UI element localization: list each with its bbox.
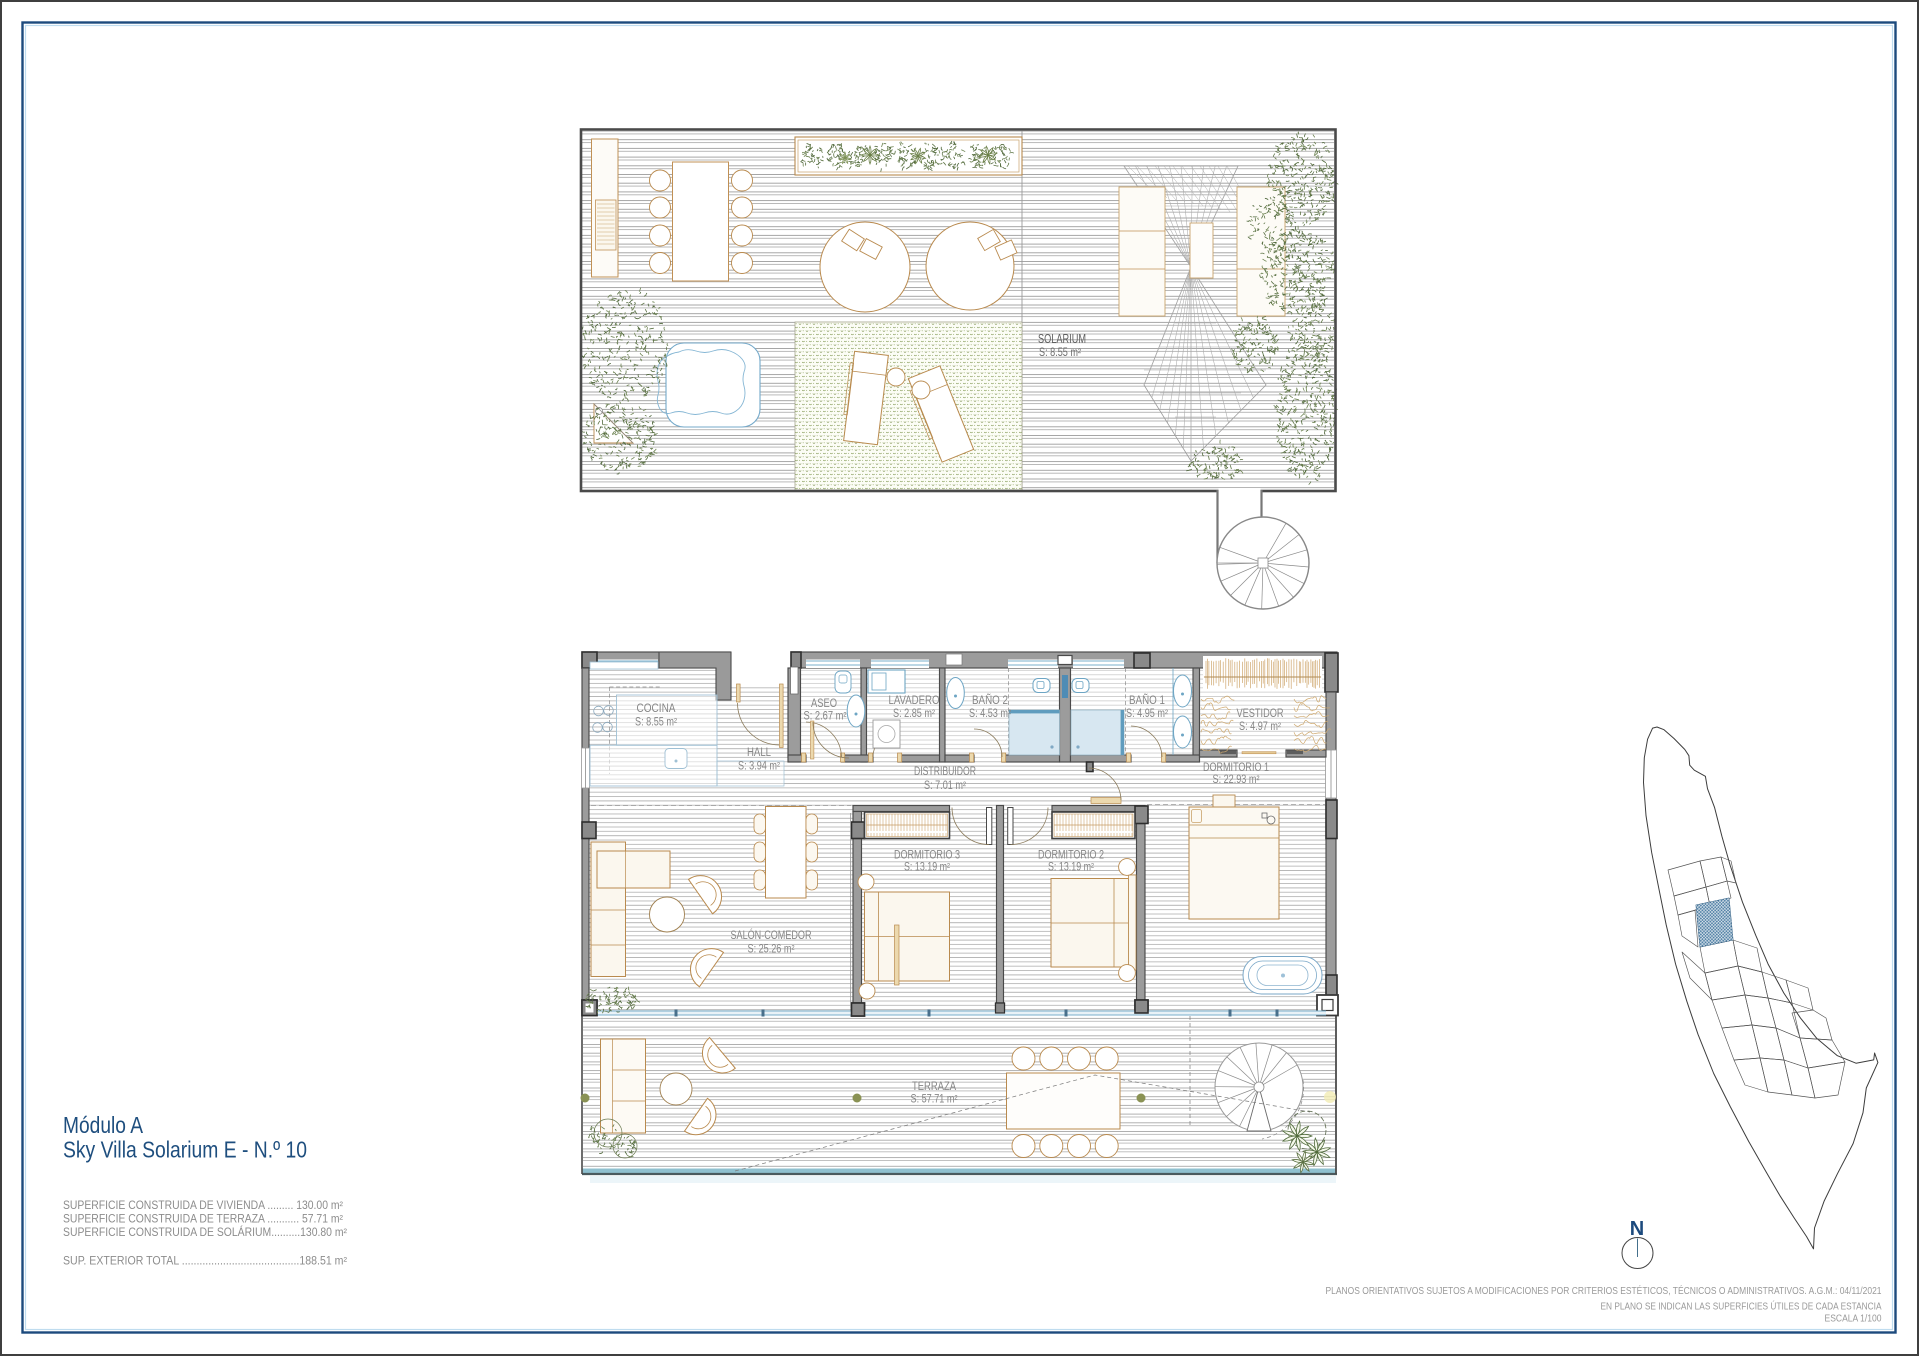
svg-text:SUPERFICIE CONSTRUIDA DE TERRA: SUPERFICIE CONSTRUIDA DE TERRAZA .......… bbox=[63, 1214, 343, 1226]
svg-text:ESCALA 1/100: ESCALA 1/100 bbox=[1825, 1314, 1882, 1325]
svg-text:TERRAZA: TERRAZA bbox=[912, 1081, 956, 1093]
svg-text:DORMITORIO 1: DORMITORIO 1 bbox=[1203, 762, 1269, 774]
svg-text:ASEO: ASEO bbox=[811, 698, 837, 710]
svg-text:HALL: HALL bbox=[747, 747, 771, 759]
svg-text:S: 8.55 m²: S: 8.55 m² bbox=[635, 717, 677, 729]
svg-text:COCINA: COCINA bbox=[637, 703, 676, 715]
svg-text:SOLARIUM: SOLARIUM bbox=[1038, 332, 1086, 346]
svg-text:DISTRIBUIDOR: DISTRIBUIDOR bbox=[914, 766, 976, 778]
svg-text:EN PLANO SE INDICAN LAS SUPERF: EN PLANO SE INDICAN LAS SUPERFICIES ÚTIL… bbox=[1601, 1300, 1882, 1313]
svg-text:S: 2.67 m²: S: 2.67 m² bbox=[804, 711, 847, 723]
svg-text:S: 4.95 m²: S: 4.95 m² bbox=[1126, 708, 1168, 720]
svg-text:S: 4.53 m²: S: 4.53 m² bbox=[969, 708, 1011, 720]
svg-text:Módulo A: Módulo A bbox=[63, 1112, 144, 1138]
svg-text:S: 3.94 m²: S: 3.94 m² bbox=[738, 761, 780, 773]
svg-text:S: 13.19 m²: S: 13.19 m² bbox=[904, 862, 950, 874]
svg-text:LAVADERO: LAVADERO bbox=[889, 695, 940, 707]
svg-text:PLANOS ORIENTATIVOS SUJETOS A: PLANOS ORIENTATIVOS SUJETOS A MODIFICACI… bbox=[1326, 1284, 1882, 1297]
svg-text:S: 7.01 m²: S: 7.01 m² bbox=[924, 780, 966, 792]
svg-text:S: 2.85 m²: S: 2.85 m² bbox=[893, 708, 935, 720]
svg-text:DORMITORIO 3: DORMITORIO 3 bbox=[894, 850, 960, 862]
svg-text:SALÓN-COMEDOR: SALÓN-COMEDOR bbox=[731, 929, 812, 942]
svg-text:N: N bbox=[1630, 1218, 1644, 1240]
svg-text:DORMITORIO 2: DORMITORIO 2 bbox=[1038, 850, 1104, 862]
svg-text:BAÑO 1: BAÑO 1 bbox=[1129, 694, 1165, 707]
svg-text:Sky Villa Solarium E - N.º 10: Sky Villa Solarium E - N.º 10 bbox=[63, 1137, 307, 1163]
svg-text:S: 22.93 m²: S: 22.93 m² bbox=[1213, 774, 1260, 786]
svg-text:S: 4.97 m²: S: 4.97 m² bbox=[1239, 721, 1281, 733]
svg-text:S: 25.26 m²: S: 25.26 m² bbox=[748, 944, 795, 956]
svg-text:SUPERFICIE CONSTRUIDA DE SOLÁR: SUPERFICIE CONSTRUIDA DE SOLÁRIUM.......… bbox=[63, 1226, 347, 1239]
svg-text:VESTIDOR: VESTIDOR bbox=[1237, 708, 1284, 720]
svg-text:SUP. EXTERIOR TOTAL ..........: SUP. EXTERIOR TOTAL ....................… bbox=[63, 1256, 347, 1268]
svg-text:S: 8.55 m²: S: 8.55 m² bbox=[1039, 347, 1081, 359]
svg-text:BAÑO 2: BAÑO 2 bbox=[972, 694, 1008, 707]
svg-text:S: 13.19 m²: S: 13.19 m² bbox=[1048, 862, 1094, 874]
svg-text:SUPERFICIE CONSTRUIDA DE VIVIE: SUPERFICIE CONSTRUIDA DE VIVIENDA ......… bbox=[63, 1200, 343, 1212]
svg-text:S: 57.71 m²: S: 57.71 m² bbox=[911, 1094, 958, 1106]
